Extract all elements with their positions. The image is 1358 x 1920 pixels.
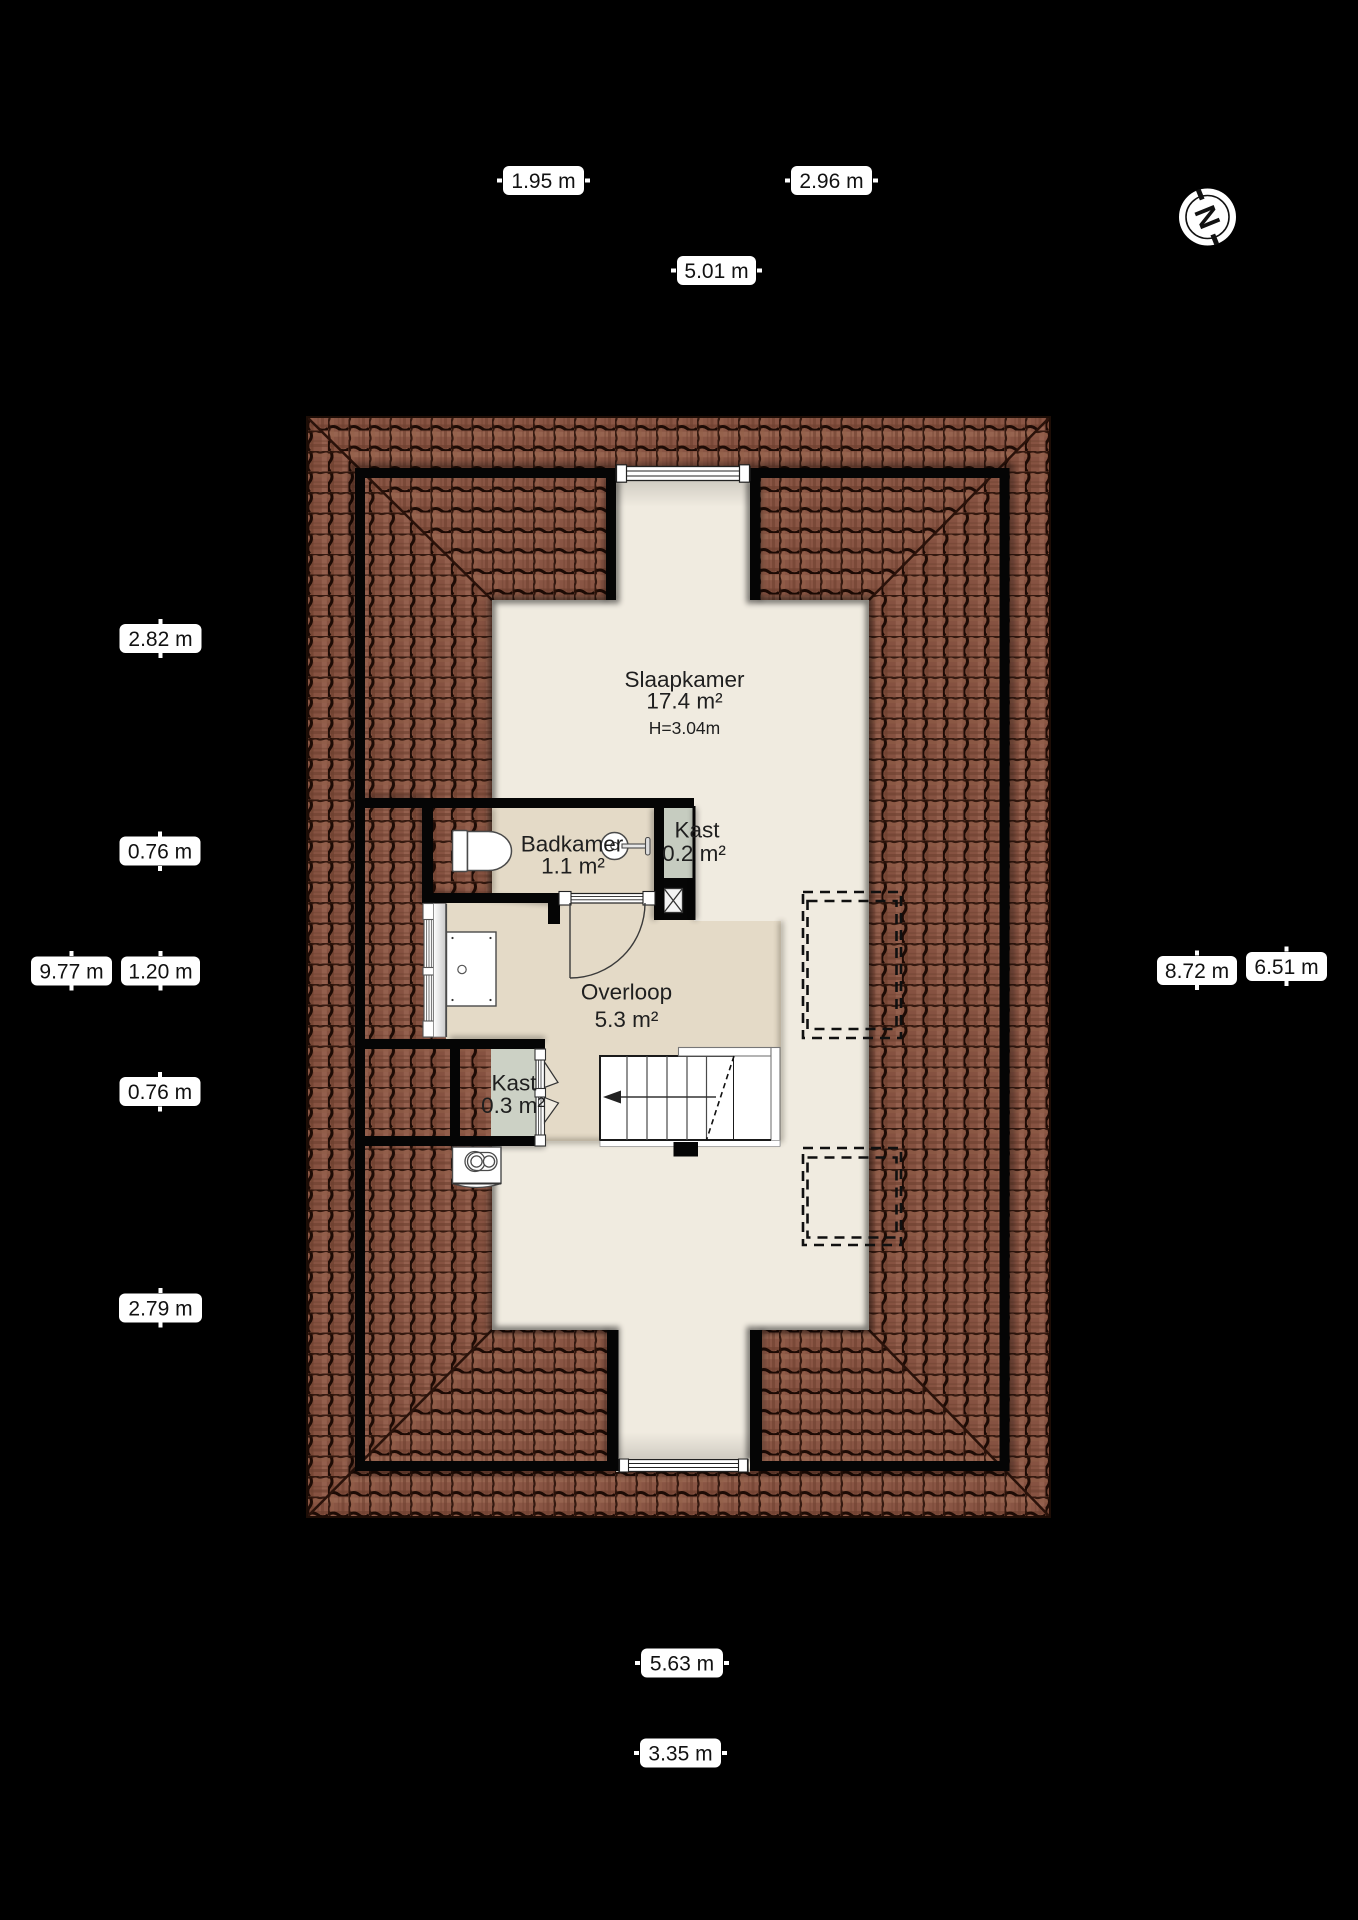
svg-text:8.72 m: 8.72 m [1165,960,1229,983]
svg-text:6.51 m: 6.51 m [1254,956,1318,979]
svg-text:2.82 m: 2.82 m [128,628,192,651]
svg-text:Kast: Kast [674,818,720,843]
svg-text:17.4 m²: 17.4 m² [646,689,723,714]
svg-text:1.20 m: 1.20 m [128,961,192,984]
svg-text:0.76 m: 0.76 m [128,841,192,864]
svg-text:H=3.04m: H=3.04m [649,718,721,738]
svg-text:0.2 m²: 0.2 m² [662,841,726,866]
svg-text:Overloop: Overloop [581,980,672,1005]
svg-text:1.1 m²: 1.1 m² [541,854,605,879]
svg-text:2.79 m: 2.79 m [128,1298,192,1321]
svg-text:0.3 m²: 0.3 m² [481,1093,545,1118]
svg-text:5.3 m²: 5.3 m² [595,1007,659,1032]
svg-text:Kast: Kast [491,1071,537,1096]
svg-text:1.95 m: 1.95 m [511,170,575,193]
svg-text:2.96 m: 2.96 m [799,170,863,193]
svg-text:0.76 m: 0.76 m [128,1081,192,1104]
svg-text:3.35 m: 3.35 m [648,1743,712,1766]
svg-text:5.63 m: 5.63 m [650,1653,714,1676]
svg-text:5.01 m: 5.01 m [684,260,748,283]
svg-text:9.77 m: 9.77 m [39,961,103,984]
